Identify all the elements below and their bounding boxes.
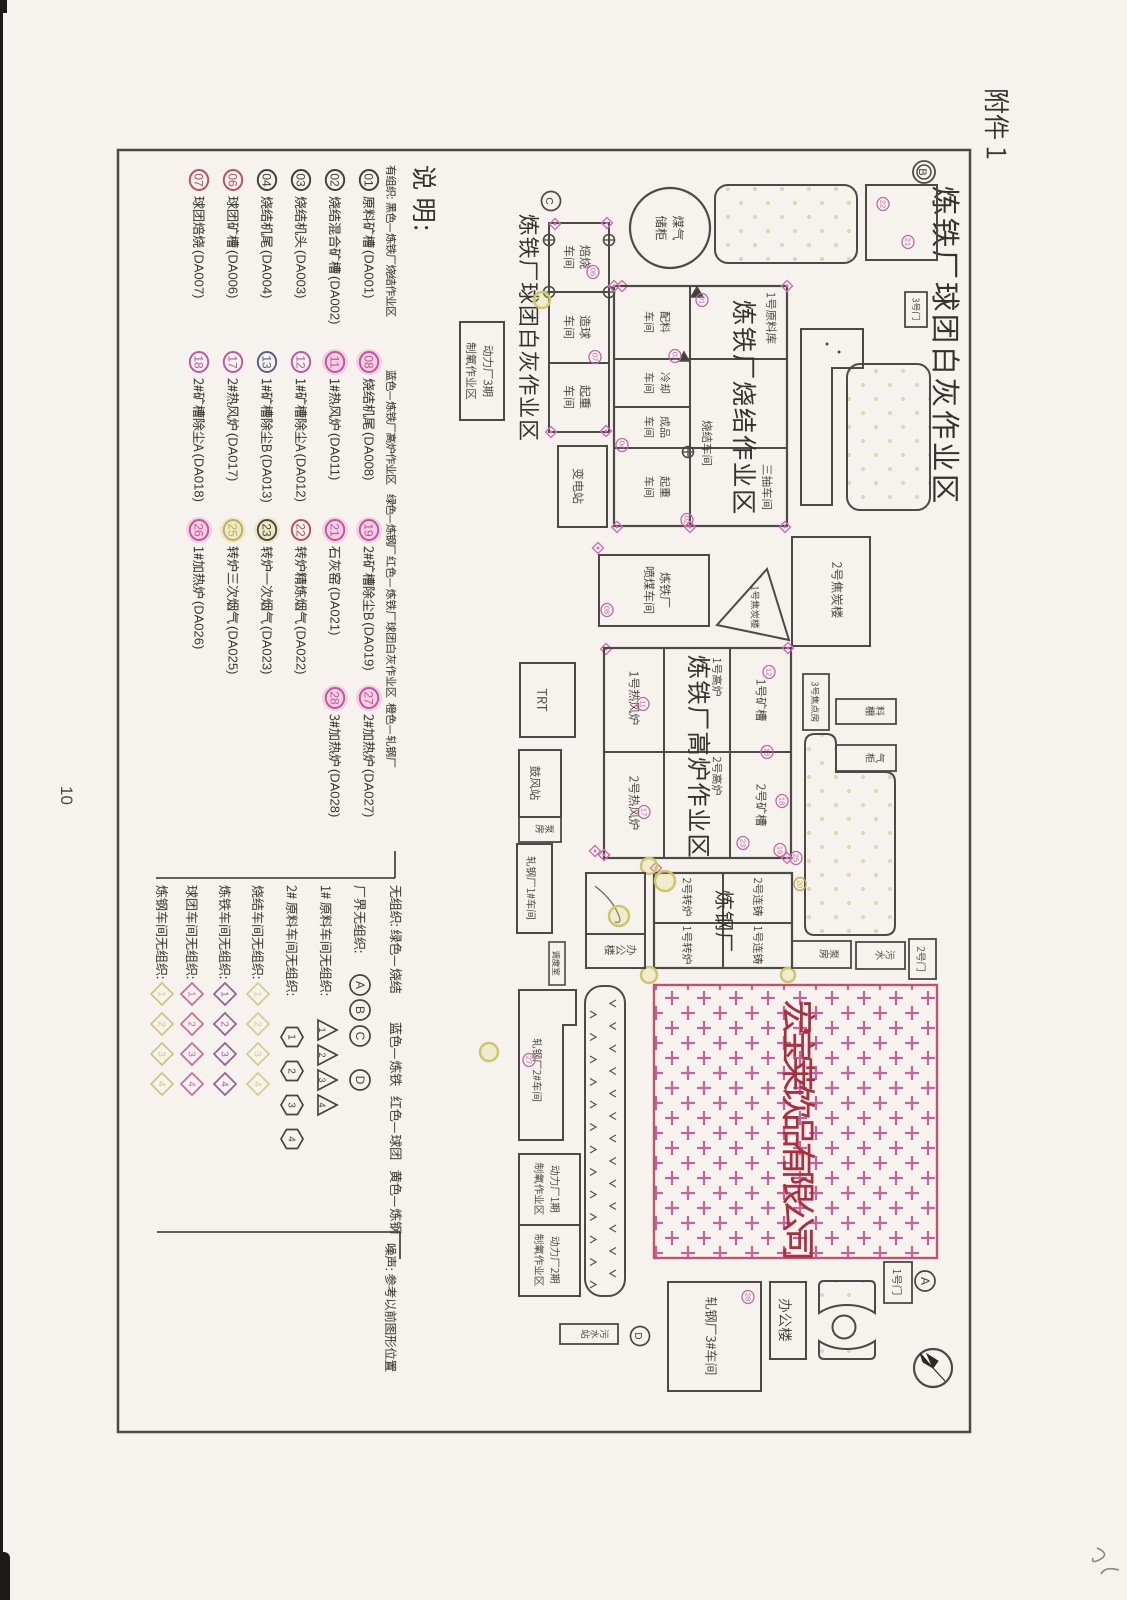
svg-text:03: 03 bbox=[294, 173, 308, 187]
svg-text:1: 1 bbox=[186, 991, 197, 997]
svg-text:2: 2 bbox=[252, 1021, 263, 1027]
svg-text:21: 21 bbox=[903, 238, 912, 246]
svg-text:26: 26 bbox=[192, 523, 206, 537]
svg-text:1: 1 bbox=[219, 991, 230, 997]
svg-text:10: 10 bbox=[57, 786, 76, 805]
svg-text:(DA017): (DA017) bbox=[226, 433, 241, 481]
svg-text:A: A bbox=[353, 981, 367, 989]
svg-text:02: 02 bbox=[328, 173, 342, 187]
svg-text:01: 01 bbox=[697, 296, 706, 304]
svg-text:11: 11 bbox=[328, 356, 342, 369]
svg-text:3: 3 bbox=[186, 1051, 197, 1057]
svg-text:23: 23 bbox=[738, 839, 747, 847]
svg-text:18: 18 bbox=[192, 355, 206, 369]
svg-text:23: 23 bbox=[260, 523, 274, 537]
svg-text:13: 13 bbox=[260, 355, 274, 369]
svg-text:3: 3 bbox=[317, 1077, 327, 1082]
svg-text:(DA013): (DA013) bbox=[260, 454, 275, 502]
svg-text:17: 17 bbox=[639, 808, 648, 816]
svg-text:4: 4 bbox=[317, 1102, 327, 1107]
svg-text:(DA028): (DA028) bbox=[328, 769, 343, 817]
svg-text:(DA023): (DA023) bbox=[260, 626, 275, 674]
svg-text:(DA027): (DA027) bbox=[362, 769, 377, 817]
svg-text:12: 12 bbox=[294, 355, 308, 369]
svg-text:(DA021): (DA021) bbox=[328, 587, 343, 635]
svg-text:03: 03 bbox=[670, 352, 679, 360]
svg-text:04: 04 bbox=[260, 173, 274, 187]
svg-text:06: 06 bbox=[588, 268, 597, 276]
svg-text:(DA018): (DA018) bbox=[192, 454, 207, 502]
svg-text:3: 3 bbox=[252, 1051, 263, 1057]
svg-text:C: C bbox=[543, 197, 554, 204]
svg-text:3: 3 bbox=[219, 1051, 230, 1057]
svg-text:2: 2 bbox=[286, 1068, 297, 1074]
svg-text:A: A bbox=[918, 1277, 932, 1285]
svg-text:02: 02 bbox=[682, 516, 691, 524]
svg-text:07: 07 bbox=[192, 173, 206, 187]
svg-text:(DA008): (DA008) bbox=[362, 432, 377, 480]
svg-text:4: 4 bbox=[156, 1081, 167, 1087]
svg-text:1: 1 bbox=[317, 1027, 327, 1032]
svg-text:4: 4 bbox=[219, 1081, 230, 1087]
svg-text:(DA001): (DA001) bbox=[362, 250, 377, 298]
svg-text:01: 01 bbox=[362, 173, 376, 187]
svg-text:19: 19 bbox=[775, 846, 784, 854]
svg-text:(DA025): (DA025) bbox=[226, 626, 241, 674]
svg-text:(DA022): (DA022) bbox=[294, 626, 309, 674]
svg-text:08: 08 bbox=[602, 606, 611, 614]
svg-text:18: 18 bbox=[777, 797, 786, 805]
svg-text:3: 3 bbox=[156, 1051, 167, 1057]
svg-text:08: 08 bbox=[362, 355, 376, 369]
svg-text:22: 22 bbox=[294, 523, 308, 537]
svg-text:1: 1 bbox=[156, 991, 167, 997]
svg-text:1: 1 bbox=[252, 991, 263, 997]
svg-text:20: 20 bbox=[795, 880, 804, 888]
svg-text:21: 21 bbox=[328, 523, 342, 537]
svg-text:(DA004): (DA004) bbox=[260, 250, 275, 298]
svg-text:1: 1 bbox=[286, 1034, 297, 1040]
svg-text:2: 2 bbox=[156, 1021, 167, 1027]
svg-text:07: 07 bbox=[590, 353, 599, 361]
svg-text:22: 22 bbox=[878, 200, 887, 208]
svg-text:4: 4 bbox=[252, 1081, 263, 1087]
svg-text:4: 4 bbox=[286, 1136, 297, 1142]
svg-text:19: 19 bbox=[362, 523, 376, 537]
svg-text:12: 12 bbox=[764, 668, 773, 676]
svg-text:2: 2 bbox=[219, 1021, 230, 1027]
svg-text:(DA012): (DA012) bbox=[294, 454, 309, 502]
svg-text:27: 27 bbox=[362, 691, 376, 705]
svg-text:11: 11 bbox=[638, 700, 647, 708]
svg-text:2: 2 bbox=[317, 1052, 327, 1057]
svg-text:(DA026): (DA026) bbox=[192, 601, 207, 649]
svg-text:(DA002): (DA002) bbox=[328, 276, 343, 324]
svg-text:25: 25 bbox=[226, 523, 240, 537]
svg-text:28: 28 bbox=[328, 691, 342, 705]
svg-text:27: 27 bbox=[524, 1056, 533, 1064]
svg-text:D: D bbox=[353, 1076, 367, 1085]
svg-text:(DA011): (DA011) bbox=[328, 433, 343, 480]
svg-text:4: 4 bbox=[186, 1081, 197, 1087]
svg-text:(DA003): (DA003) bbox=[294, 250, 309, 298]
svg-text:06: 06 bbox=[226, 173, 240, 187]
svg-text:C: C bbox=[353, 1032, 367, 1041]
svg-text:04: 04 bbox=[617, 441, 626, 449]
svg-text:3: 3 bbox=[286, 1102, 297, 1108]
svg-text:B: B bbox=[916, 168, 928, 175]
svg-text:(DA007): (DA007) bbox=[192, 250, 207, 298]
svg-text:B: B bbox=[353, 1006, 367, 1014]
svg-text:(DA006): (DA006) bbox=[226, 250, 241, 298]
svg-text:13: 13 bbox=[762, 748, 771, 756]
svg-text:(DA019): (DA019) bbox=[362, 622, 377, 670]
svg-text:28: 28 bbox=[743, 1293, 752, 1301]
svg-text:D: D bbox=[632, 1332, 643, 1339]
svg-text:2: 2 bbox=[186, 1021, 197, 1027]
svg-text:17: 17 bbox=[226, 355, 240, 369]
